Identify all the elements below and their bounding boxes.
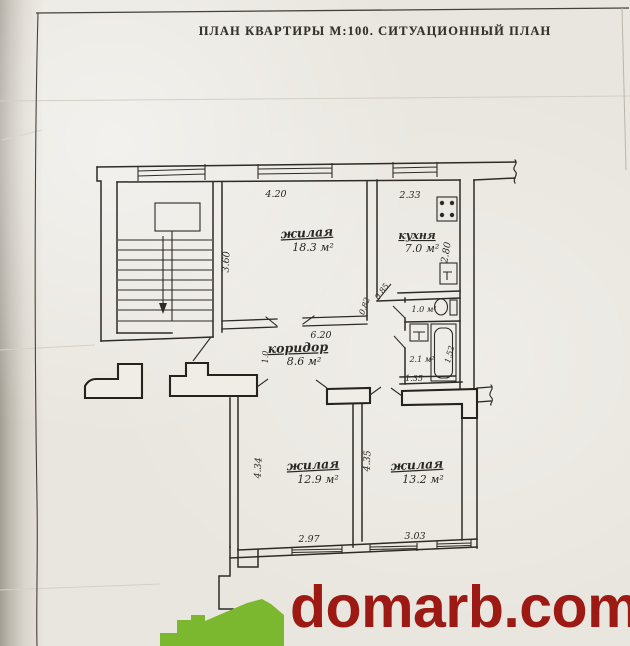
room-labels: жилая 18.3 м² кухня 7.0 м² коридор 8.6 м…: [267, 224, 443, 486]
kitchen-sink-icon: [440, 263, 457, 284]
dim-door-a: 0.85: [373, 282, 391, 302]
room-label-living1-area: 18.3 м²: [292, 241, 334, 254]
dim-living2-width: 2.97: [297, 534, 320, 545]
dim-bath-width: 1.35: [405, 374, 423, 383]
room-label-living2-name: жилая: [286, 456, 339, 474]
room-label-living3-name: жилая: [390, 456, 443, 474]
staircase: [118, 203, 213, 321]
dim-living2-depth: 4.34: [252, 457, 264, 480]
stove-icon: [437, 197, 457, 221]
dim-living3-depth: 4.35: [361, 450, 373, 473]
room-label-bath-area: 2.1 м²: [408, 355, 434, 364]
room-label-living3-area: 13.2 м²: [402, 473, 444, 486]
scanned-floor-plan-page: ПЛАН КВАРТИРЫ М:100. СИТУАЦИОННЫЙ ПЛАН: [0, 0, 630, 646]
dim-corridor-length: 6.20: [310, 330, 331, 341]
border-frame: [35, 8, 629, 646]
washbasin-icon: [410, 324, 428, 341]
middle-wall-pieces: [85, 363, 477, 418]
watermark-site-text: domarb.com: [290, 574, 630, 640]
dim-bath-depth: 1.52: [443, 345, 456, 365]
room-label-kitchen-name: кухня: [398, 229, 436, 242]
dim-corridor-door: 1.0: [261, 351, 270, 364]
room-label-kitchen-area: 7.0 м²: [405, 242, 440, 255]
green-house-logo: [160, 599, 284, 646]
room-label-corridor-name: коридор: [267, 339, 328, 356]
room-label-corridor-area: 8.6 м²: [287, 355, 322, 368]
room-label-living2-area: 12.9 м²: [297, 473, 339, 486]
watermark: domarb.com: [160, 574, 630, 646]
toilet-icon: [435, 299, 458, 315]
room-label-living1-name: жилая: [280, 224, 333, 242]
dim-top-room-depth: 3.60: [220, 251, 232, 273]
room-label-wc-area: 1.0 м²: [411, 305, 436, 314]
dim-top-room-width: 4.20: [264, 189, 286, 200]
dim-door-b: 0.82: [357, 296, 372, 316]
dim-kitchen-width: 2.33: [398, 190, 420, 201]
floor-plan-drawing: жилая 18.3 м² кухня 7.0 м² коридор 8.6 м…: [0, 0, 630, 646]
dim-living3-width: 3.03: [404, 531, 425, 542]
dim-kitchen-depth: 2.80: [439, 241, 454, 265]
